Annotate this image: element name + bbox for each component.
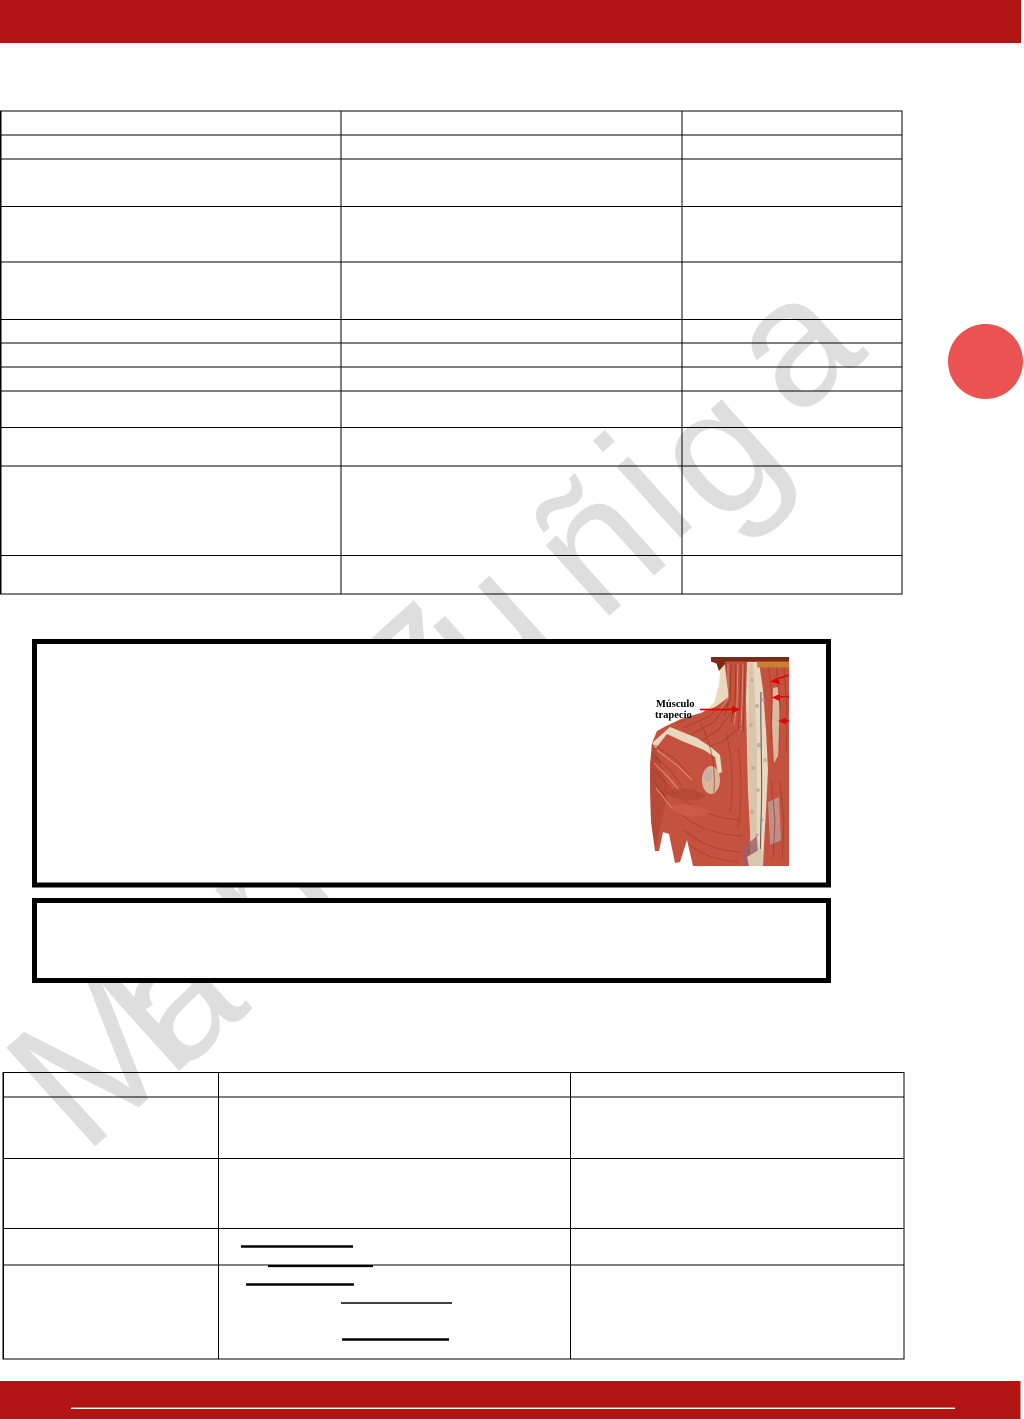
svg-text:trapecio: trapecio (655, 710, 692, 721)
svg-text:Músculo: Músculo (656, 699, 695, 710)
